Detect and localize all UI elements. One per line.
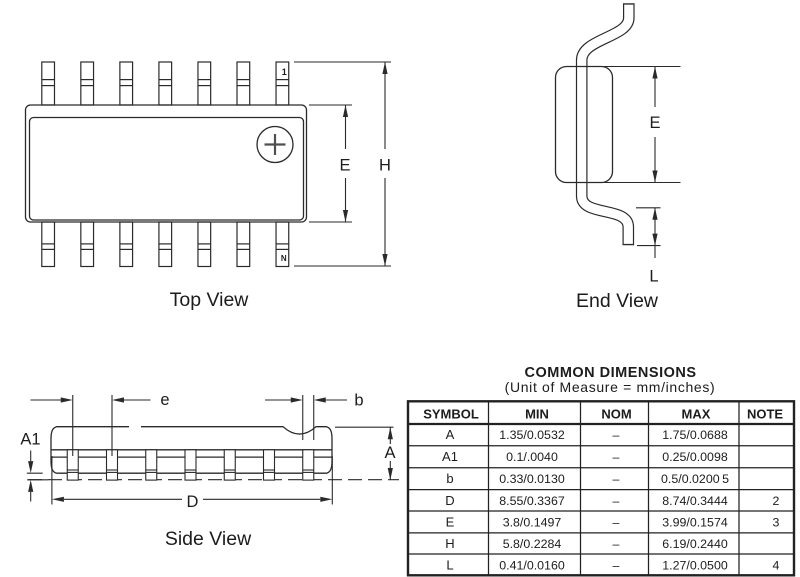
svg-text:N: N <box>281 254 287 263</box>
svg-text:E: E <box>339 157 350 175</box>
svg-text:L: L <box>446 558 453 573</box>
svg-text:A1: A1 <box>20 431 40 449</box>
svg-text:–: – <box>613 537 620 551</box>
svg-text:MAX: MAX <box>682 407 711 422</box>
svg-text:L: L <box>649 268 658 286</box>
svg-text:1: 1 <box>282 67 287 77</box>
svg-text:b: b <box>354 392 363 410</box>
svg-text:End View: End View <box>576 290 659 312</box>
svg-text:1.27/0.0500: 1.27/0.0500 <box>662 559 728 573</box>
svg-text:A: A <box>384 444 395 462</box>
svg-text:0.25/0.0098: 0.25/0.0098 <box>662 450 728 464</box>
svg-text:Side View: Side View <box>165 528 252 550</box>
svg-text:H: H <box>445 536 454 551</box>
svg-text:–: – <box>613 472 620 486</box>
svg-text:3.8/0.1497: 3.8/0.1497 <box>503 516 562 530</box>
svg-text:Top View: Top View <box>170 289 250 311</box>
svg-text:1.35/0.0532: 1.35/0.0532 <box>499 428 565 442</box>
svg-text:A1: A1 <box>442 449 458 464</box>
svg-text:2: 2 <box>773 494 780 508</box>
svg-text:–: – <box>613 494 620 508</box>
svg-text:–: – <box>613 450 620 464</box>
svg-text:SYMBOL: SYMBOL <box>423 407 479 422</box>
svg-text:–: – <box>613 516 620 530</box>
svg-text:MIN: MIN <box>525 407 549 422</box>
svg-text:NOTE: NOTE <box>747 407 783 422</box>
svg-text:8.55/0.3367: 8.55/0.3367 <box>499 494 565 508</box>
svg-text:0.33/0.0130: 0.33/0.0130 <box>499 472 565 486</box>
svg-text:3.99/0.1574: 3.99/0.1574 <box>662 516 728 530</box>
svg-text:3: 3 <box>773 516 780 530</box>
svg-text:b: b <box>446 471 453 486</box>
svg-text:1.75/0.0688: 1.75/0.0688 <box>662 428 728 442</box>
svg-text:5.8/0.2284: 5.8/0.2284 <box>503 537 562 551</box>
svg-text:e: e <box>160 391 169 409</box>
svg-text:–: – <box>613 428 620 442</box>
svg-text:(Unit of Measure = mm/inches): (Unit of Measure = mm/inches) <box>505 379 716 395</box>
svg-text:E: E <box>446 515 455 530</box>
svg-text:0.41/0.0160: 0.41/0.0160 <box>499 559 565 573</box>
svg-text:D: D <box>187 493 199 511</box>
svg-text:D: D <box>445 493 454 508</box>
svg-text:4: 4 <box>773 559 780 573</box>
svg-text:E: E <box>649 114 660 132</box>
svg-text:0.1/.0040: 0.1/.0040 <box>506 450 558 464</box>
svg-text:8.74/0.3444: 8.74/0.3444 <box>662 494 728 508</box>
svg-text:–: – <box>613 559 620 573</box>
svg-text:A: A <box>446 427 455 442</box>
svg-text:NOM: NOM <box>601 407 631 422</box>
svg-text:H: H <box>379 157 391 175</box>
svg-text:0.5/0.0200 5: 0.5/0.0200 5 <box>661 472 729 486</box>
svg-text:6.19/0.2440: 6.19/0.2440 <box>662 537 728 551</box>
